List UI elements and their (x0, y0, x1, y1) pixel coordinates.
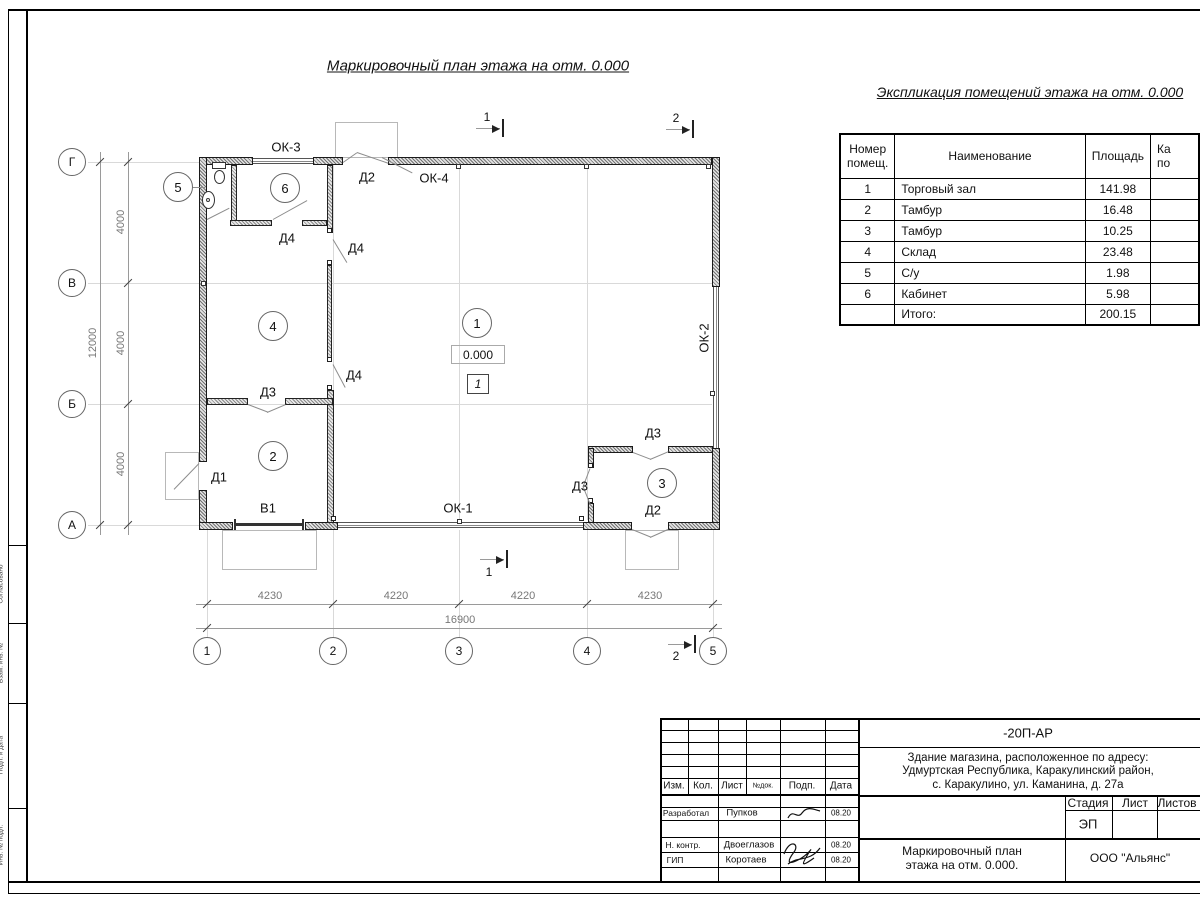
side-label-podp-data: Подп. и дата (0, 736, 5, 774)
gate-v1 (235, 523, 303, 526)
label-d2-bottom: Д2 (645, 503, 661, 518)
cell-name: Кабинет (895, 283, 1085, 304)
wall-bottom (583, 522, 632, 530)
label-d4-b: Д4 (348, 241, 364, 256)
axis-row-g: Г (58, 148, 86, 176)
cell-area: 23.48 (1085, 241, 1150, 262)
cell-name: С/у (895, 262, 1085, 283)
room-number-label: 6 (281, 181, 288, 196)
elevation-value: 0.000 (463, 348, 493, 362)
side-label-inv-podl: Инв. № подл. (0, 825, 5, 866)
frame-inner-left (26, 9, 28, 881)
cell-area: 1.98 (1085, 262, 1150, 283)
door-swing (333, 364, 346, 387)
wall-tambour3-top (668, 446, 713, 453)
dim-value: 4000 (115, 331, 127, 355)
axis-row-v: В (58, 269, 86, 297)
date-ncontrol: 08.20 (831, 841, 851, 850)
window-ok2 (713, 287, 719, 448)
dim-value: 4000 (115, 210, 127, 234)
room-number-label: 1 (473, 316, 480, 331)
table-row: 6Кабинет5.98 (840, 283, 1199, 304)
porch-outline (165, 452, 199, 500)
dim-value: 4220 (384, 590, 408, 602)
axis-label: 4 (584, 644, 591, 658)
floor-type-value: 1 (475, 377, 482, 391)
cell-num: 4 (840, 241, 895, 262)
total-label: Итого: (895, 304, 1085, 325)
axis-label: 2 (330, 644, 337, 658)
label-ok1: ОК-1 (443, 501, 472, 516)
partition-axis2-mid (327, 265, 332, 362)
table-total-row: Итого:200.15 (840, 304, 1199, 325)
cell-category (1150, 220, 1199, 241)
signature-icon (780, 834, 824, 870)
label-ok2: ОК-2 (697, 323, 712, 352)
dim-line (100, 152, 101, 535)
opening-break (248, 404, 268, 412)
cell-category (1150, 178, 1199, 199)
date-gip: 08.20 (831, 856, 851, 865)
object-line: Здание магазина, расположенное по адресу… (908, 752, 1149, 764)
label-ok4: ОК-4 (419, 171, 448, 186)
col-kol: Кол. (693, 781, 713, 792)
dim-value: 4230 (638, 590, 662, 602)
section-mark-2: 2 (673, 111, 680, 125)
wall-top (199, 157, 253, 165)
opening-break (267, 404, 286, 413)
section-mark-1: 1 (484, 110, 491, 124)
partition-wc (231, 165, 237, 225)
label-ok3: ОК-3 (271, 140, 300, 155)
axis-line (88, 283, 201, 284)
wall-tick (706, 164, 711, 169)
wall-tick (457, 519, 462, 524)
section-mark-1-bottom: 1 (486, 565, 493, 579)
cell-name: Торговый зал (895, 178, 1085, 199)
name-ncontrol: Двоеглазов (724, 840, 775, 851)
partition-rooms56-bottom (302, 220, 327, 226)
object-line: с. Каракулино, ул. Каманина, д. 27а (932, 779, 1123, 791)
axis-line (88, 162, 201, 163)
wall-cap (579, 516, 584, 521)
room-number-6: 6 (270, 173, 300, 203)
partition-rooms56-bottom (230, 220, 272, 226)
col-list: Лист (721, 781, 743, 792)
col-data: Дата (830, 781, 852, 792)
col-ndok: №док. (753, 783, 774, 790)
section-arrow-icon (492, 125, 500, 133)
cell-num: 3 (840, 220, 895, 241)
partition-axis2-lower (327, 390, 334, 523)
wall-tick (584, 164, 589, 169)
axis-line (459, 165, 460, 520)
room-number-5: 5 (163, 172, 193, 202)
header-room-number: Номерпомещ. (840, 134, 895, 178)
header-name: Наименование (895, 134, 1085, 178)
plan-title: Маркировочный план этажа на отм. 0.000 (327, 58, 629, 75)
stage-value: ЭП (1079, 817, 1098, 832)
col-izm: Изм. (663, 781, 684, 792)
room-number-label: 5 (174, 180, 181, 195)
sheet-label: Лист (1122, 796, 1148, 810)
room-number-label: 4 (269, 319, 276, 334)
cell-category (1150, 262, 1199, 283)
partition-axisB (207, 398, 248, 405)
wall-tambour3-top (588, 446, 633, 453)
toilet-icon (212, 162, 226, 169)
label-d1: Д1 (211, 470, 227, 485)
axis-label: Г (69, 155, 76, 169)
wall-cap (327, 385, 332, 390)
stamp-divider (8, 545, 26, 546)
cell-num: 5 (840, 262, 895, 283)
label-d2-top: Д2 (359, 170, 375, 185)
section-arrow-icon (684, 641, 692, 649)
label-v1: В1 (260, 501, 276, 516)
name-gip: Коротаев (725, 855, 766, 866)
table-header-row: Номерпомещ. Наименование Площадь Капо (840, 134, 1199, 178)
axis-label: 1 (204, 644, 211, 658)
extension-line (587, 530, 588, 640)
axis-col-2: 2 (319, 637, 347, 665)
wall-cap (327, 260, 332, 265)
door-swing (333, 239, 348, 263)
wall-bottom (668, 522, 720, 530)
stamp-divider (8, 703, 26, 704)
room-number-2: 2 (258, 441, 288, 471)
dim-value: 4220 (511, 590, 535, 602)
door-swing (207, 208, 230, 220)
frame-outer-bottom (8, 893, 1200, 894)
axis-label: 5 (710, 644, 717, 658)
wall-cap (327, 228, 332, 233)
doc-code: -20П-АР (1003, 726, 1053, 741)
extension-line (333, 530, 334, 640)
section-arrow-icon (682, 126, 690, 134)
label-d4-c: Д4 (346, 368, 362, 383)
wall-right-upper (712, 157, 720, 287)
partition-axis2-upper (327, 165, 333, 233)
frame-top (8, 9, 1200, 11)
label-d4-a: Д4 (279, 231, 295, 246)
company-name: ООО "Альянс" (1090, 851, 1170, 865)
section-bar (506, 550, 508, 568)
explication-table: Номерпомещ. Наименование Площадь Капо 1Т… (839, 133, 1200, 326)
axis-col-3: 3 (445, 637, 473, 665)
table-row: 4Склад23.48 (840, 241, 1199, 262)
window-ok3 (253, 158, 313, 164)
cell-category (1150, 283, 1199, 304)
cell-area: 10.25 (1085, 220, 1150, 241)
side-label-soglasovano: Согласовано (0, 564, 5, 603)
total-value: 200.15 (1085, 304, 1150, 325)
label-d3-b: Д3 (645, 426, 661, 441)
wall-top-ok4-band (388, 157, 712, 165)
wall-cap (327, 357, 332, 362)
section-arrow-icon (496, 556, 504, 564)
role-ncontrol: Н. контр. (665, 840, 700, 850)
room-number-4: 4 (258, 311, 288, 341)
axis-label: 3 (456, 644, 463, 658)
porch-outline (335, 122, 398, 158)
partition-axisB (285, 398, 333, 405)
cell-area: 16.48 (1085, 199, 1150, 220)
opening-break (633, 452, 651, 460)
axis-col-5: 5 (699, 637, 727, 665)
title-block: -20П-АР Здание магазина, расположенное п… (660, 718, 1200, 881)
room-number-label: 3 (658, 476, 665, 491)
door-swing (273, 200, 308, 220)
wall-tick (201, 281, 206, 286)
section-mark-2-bottom: 2 (673, 649, 680, 663)
cell-category (1150, 304, 1199, 325)
drawing-sheet: Согласовано Взам. инв. № Подп. и дата Ин… (0, 0, 1200, 900)
floor-type-mark: 1 (467, 374, 489, 394)
room-number-3: 3 (647, 468, 677, 498)
leader-line (192, 187, 205, 188)
dim-total-value: 12000 (87, 328, 99, 359)
cell-name: Тамбур (895, 220, 1085, 241)
axis-line (88, 404, 201, 405)
wall-cap (331, 516, 336, 521)
dim-line (196, 628, 722, 629)
dim-total-value: 16900 (445, 614, 476, 626)
header-area: Площадь (1085, 134, 1150, 178)
doc-name-line: Маркировочный план (902, 844, 1022, 858)
cell-category (1150, 241, 1199, 262)
role-gip: ГИП (667, 855, 684, 865)
table-row: 5С/у1.98 (840, 262, 1199, 283)
cell-category (1150, 199, 1199, 220)
gate-v1-end (302, 519, 304, 530)
room-number-label: 2 (269, 449, 276, 464)
table-row: 3Тамбур10.25 (840, 220, 1199, 241)
gate-v1-end (234, 519, 236, 530)
cell-area: 5.98 (1085, 283, 1150, 304)
wall-bottom (199, 522, 233, 530)
porch-outline (222, 530, 317, 570)
axis-line (88, 525, 201, 526)
axis-row-b: Б (58, 390, 86, 418)
axis-label: Б (68, 397, 76, 411)
frame-outer-left (8, 9, 9, 894)
axis-col-1: 1 (193, 637, 221, 665)
label-d3-c: Д3 (572, 479, 588, 494)
stamp-divider (8, 623, 26, 624)
axis-label: А (68, 518, 76, 532)
wall-tick (456, 164, 461, 169)
explication-title: Экспликация помещений этажа на отм. 0.00… (877, 84, 1183, 100)
label-d3-a: Д3 (260, 385, 276, 400)
doc-name-line: этажа на отм. 0.000. (906, 858, 1019, 872)
table-row: 2Тамбур16.48 (840, 199, 1199, 220)
section-bar (502, 119, 504, 137)
axis-col-4: 4 (573, 637, 601, 665)
stage-label: Стадия (1068, 796, 1109, 810)
toilet-icon (214, 170, 225, 184)
sheets-label: Листов (1158, 796, 1197, 810)
dim-value: 4000 (115, 452, 127, 476)
signature-icon (785, 806, 823, 822)
axis-row-a: А (58, 511, 86, 539)
axis-label: В (68, 276, 76, 290)
section-bar (694, 635, 696, 653)
opening-break (650, 451, 669, 460)
cell-area: 141.98 (1085, 178, 1150, 199)
cell-name: Склад (895, 241, 1085, 262)
elevation-mark: 0.000 (451, 345, 505, 364)
wall-bottom (305, 522, 338, 530)
cell-num: 1 (840, 178, 895, 199)
dim-value: 4230 (258, 590, 282, 602)
cell-num: 2 (840, 199, 895, 220)
wall-tambour3-left (588, 503, 594, 523)
table-row: 1Торговый зал141.98 (840, 178, 1199, 199)
wall-top (313, 157, 343, 165)
wall-tick (710, 391, 715, 396)
dim-line (128, 152, 129, 535)
sink-icon (206, 198, 210, 202)
cell-empty (840, 304, 895, 325)
role-developer: Разработал (663, 808, 709, 818)
cell-num: 6 (840, 283, 895, 304)
section-bar (692, 120, 694, 138)
date-developer: 08.20 (831, 809, 851, 818)
wall-right-lower (712, 448, 720, 530)
header-category: Капо (1150, 134, 1199, 178)
room-number-1: 1 (462, 308, 492, 338)
frame-bottom (8, 881, 1200, 883)
extension-line (713, 530, 714, 640)
stamp-divider (8, 808, 26, 809)
cell-name: Тамбур (895, 199, 1085, 220)
name-developer: Пупков (726, 808, 757, 819)
col-podp: Подп. (789, 781, 816, 792)
extension-line (207, 530, 208, 640)
object-line: Удмуртская Республика, Каракулинский рай… (902, 765, 1154, 777)
side-label-vzam-inv: Взам. инв. № (0, 643, 5, 683)
